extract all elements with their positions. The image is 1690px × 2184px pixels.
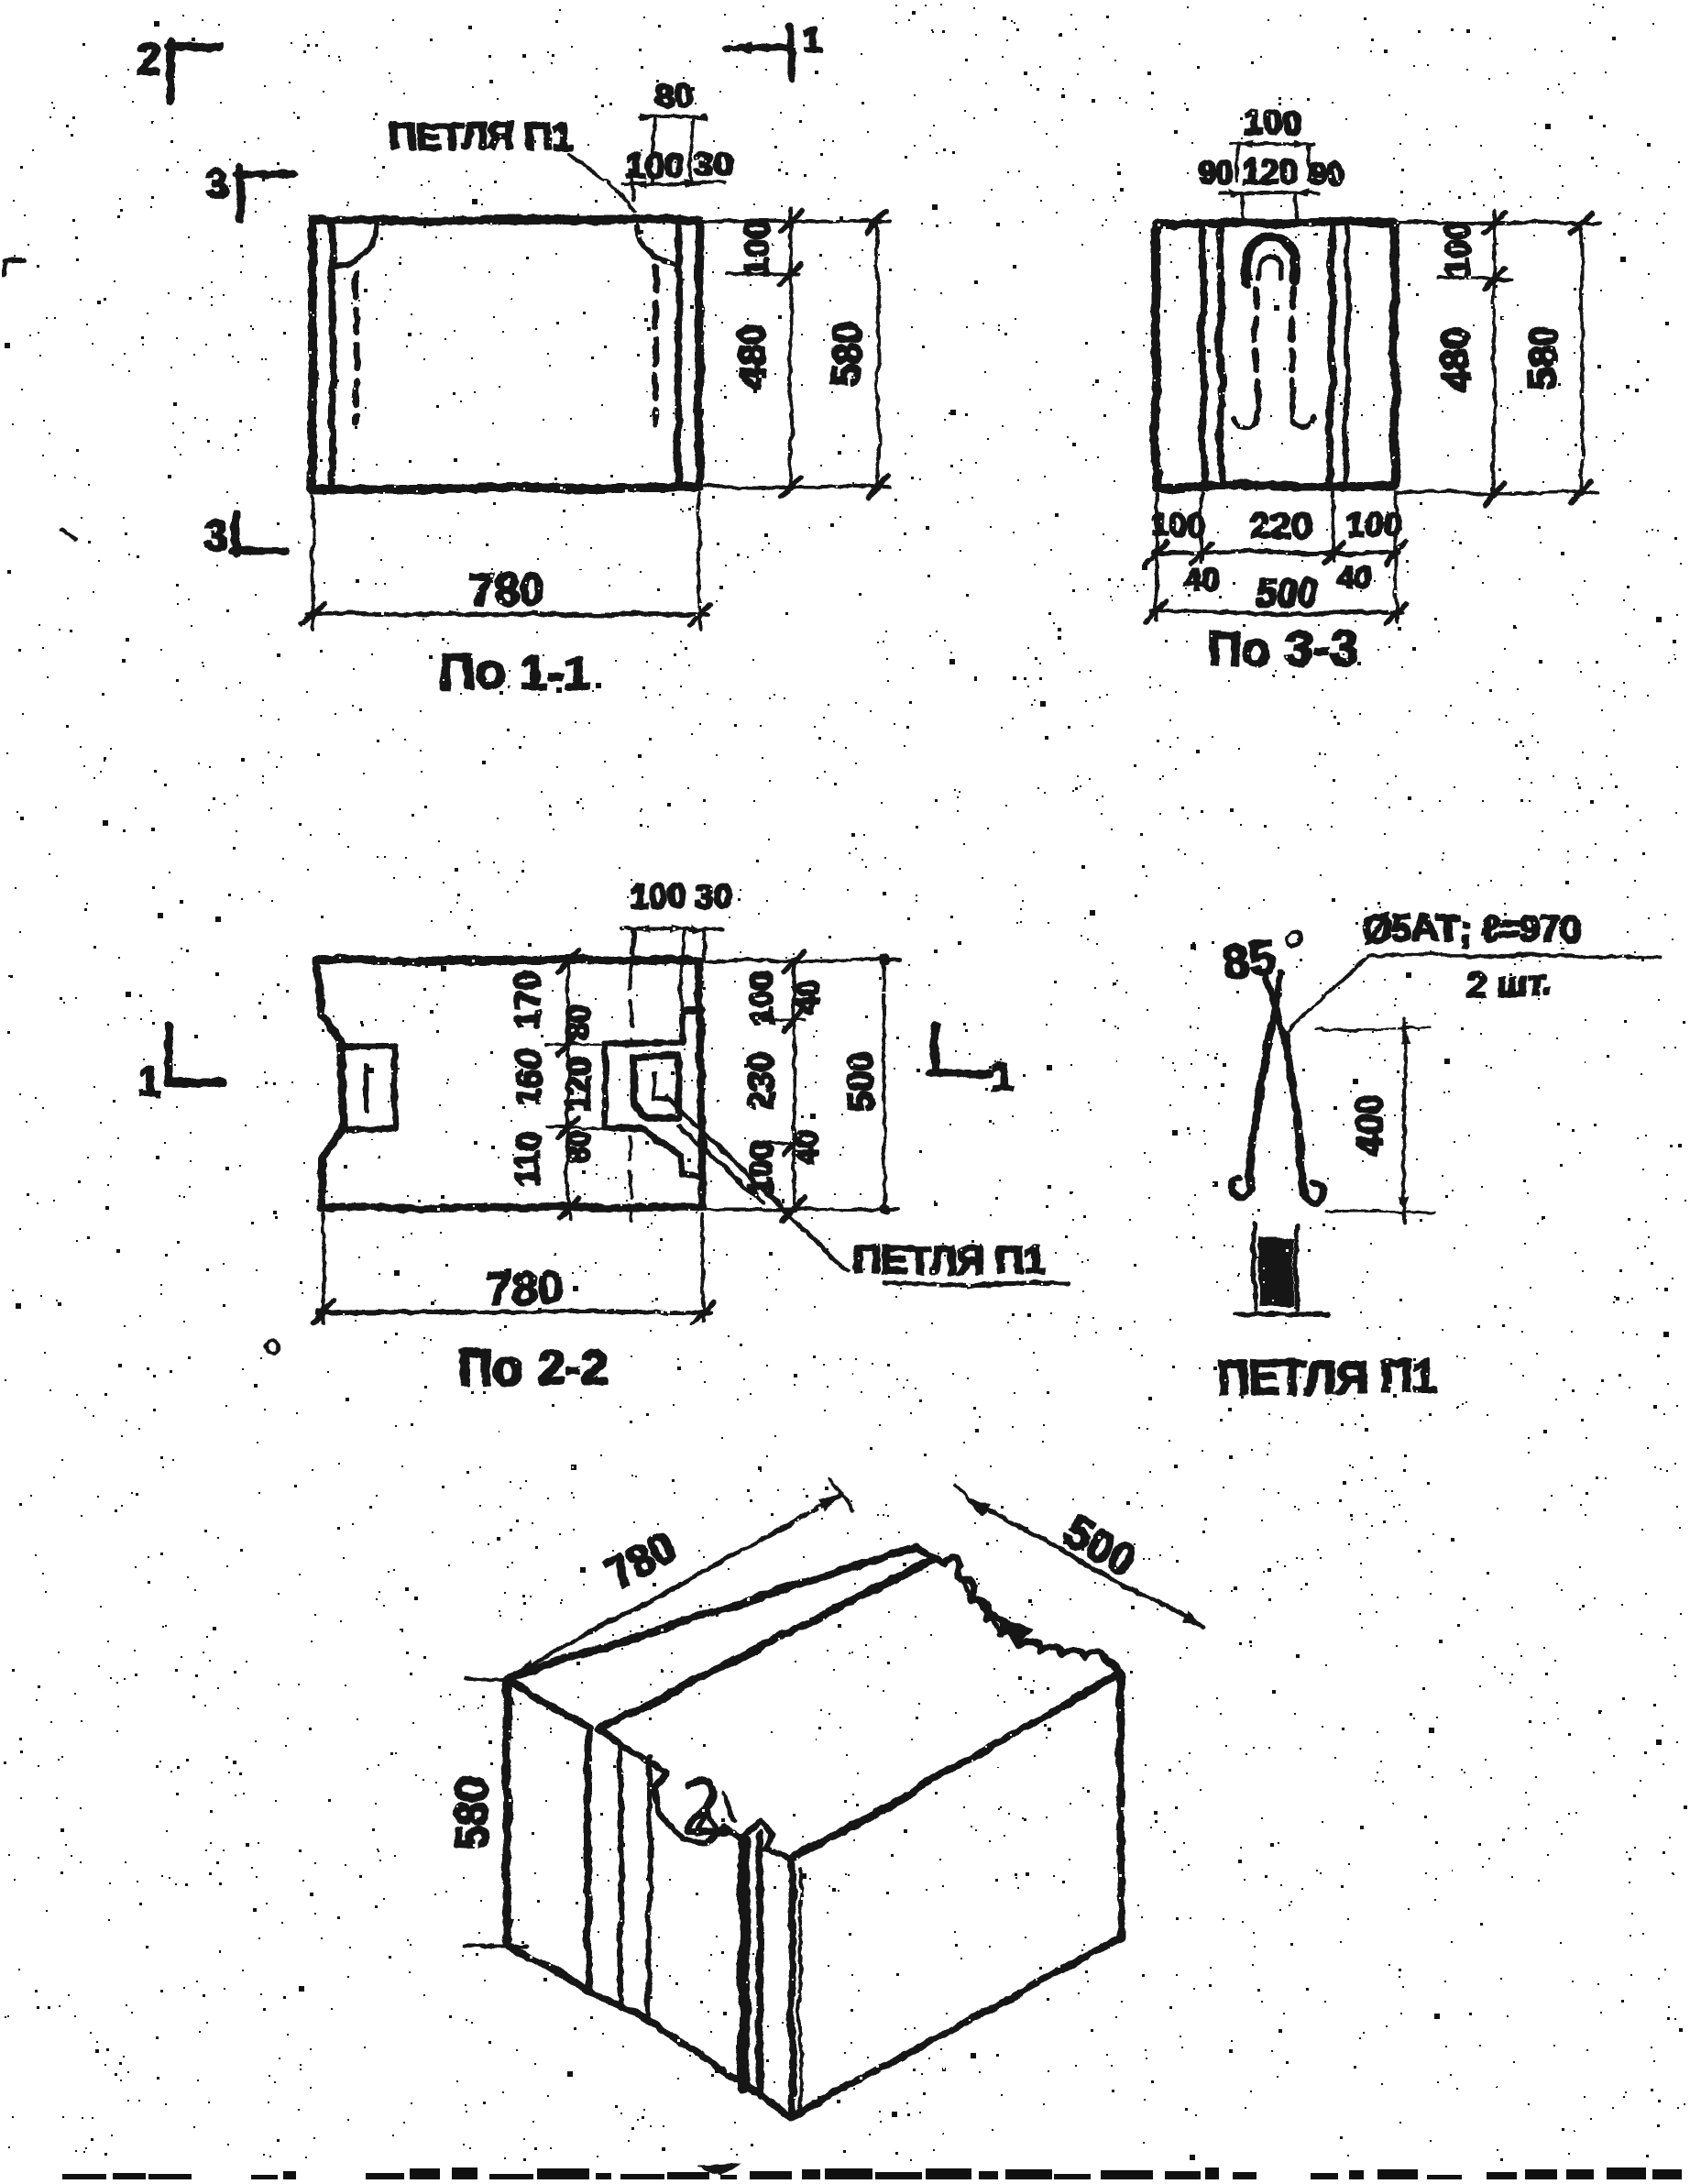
svg-text:40: 40 (791, 1129, 826, 1164)
svg-text:100: 100 (1346, 506, 1401, 543)
svg-text:480: 480 (1433, 327, 1476, 391)
svg-text:2: 2 (137, 35, 161, 82)
svg-text:1: 1 (990, 1055, 1012, 1100)
svg-text:1: 1 (802, 19, 822, 60)
svg-text:580: 580 (448, 1776, 497, 1849)
svg-text:170: 170 (510, 971, 548, 1028)
svg-text:500: 500 (1257, 573, 1318, 613)
svg-text:40: 40 (1183, 561, 1220, 598)
svg-text:780: 780 (467, 564, 543, 615)
svg-text:100: 100 (1151, 506, 1206, 543)
svg-text:80: 80 (562, 1004, 597, 1039)
svg-text:400: 400 (1350, 1095, 1390, 1157)
svg-text:230: 230 (742, 1052, 781, 1110)
svg-text:100: 100 (742, 1141, 780, 1196)
svg-text:100: 100 (1438, 222, 1476, 277)
svg-text:120: 120 (1243, 153, 1298, 191)
svg-text:580: 580 (825, 322, 868, 386)
svg-text:ПЕТЛЯ П1: ПЕТЛЯ П1 (1217, 1352, 1436, 1403)
svg-text:30: 30 (696, 879, 732, 916)
svg-text:500: 500 (841, 1051, 882, 1113)
svg-text:110: 110 (510, 1131, 548, 1187)
svg-text:80: 80 (562, 1131, 597, 1166)
svg-text:90: 90 (1199, 157, 1234, 192)
svg-text:30: 30 (696, 146, 734, 184)
svg-text:90: 90 (1309, 157, 1344, 192)
svg-text:3: 3 (205, 511, 229, 559)
svg-text:100: 100 (627, 146, 685, 184)
svg-text:По 1-1: По 1-1 (440, 645, 591, 700)
svg-text:100: 100 (1243, 104, 1300, 142)
svg-text:2 шт.: 2 шт. (1466, 963, 1553, 1004)
svg-text:80: 80 (654, 78, 693, 116)
svg-text:3: 3 (204, 159, 228, 207)
svg-text:100: 100 (742, 971, 780, 1026)
svg-text:580: 580 (1520, 325, 1564, 390)
svg-text:По 3-3: По 3-3 (1207, 621, 1358, 676)
svg-text:120: 120 (559, 1057, 597, 1112)
svg-text:ПЕТЛЯ П1: ПЕТЛЯ П1 (389, 115, 572, 158)
svg-text:100: 100 (629, 877, 686, 916)
svg-text:1: 1 (138, 1060, 160, 1105)
svg-text:100: 100 (738, 219, 776, 277)
svg-text:780: 780 (487, 1262, 563, 1313)
svg-text:480: 480 (730, 324, 774, 388)
svg-text:160: 160 (510, 1048, 548, 1106)
svg-text:40: 40 (791, 981, 826, 1015)
svg-text:По 2-2: По 2-2 (458, 1340, 609, 1395)
svg-text:220: 220 (1252, 507, 1313, 547)
svg-text:40: 40 (1337, 560, 1372, 595)
svg-text:Ø5АТ; ℓ=970: Ø5АТ; ℓ=970 (1362, 907, 1581, 950)
